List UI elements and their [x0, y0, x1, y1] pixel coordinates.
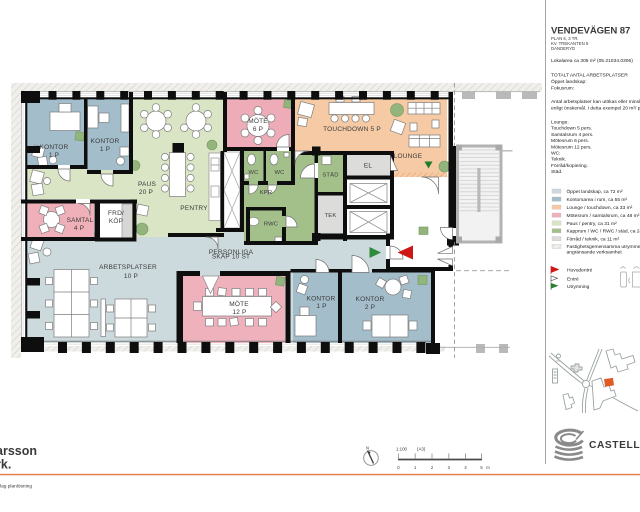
svg-text:Öppet landskap:: Öppet landskap:	[551, 78, 587, 85]
svg-text:Fokusrum:: Fokusrum:	[551, 85, 574, 91]
svg-text:TOTALT ANTAL ARBETSPLATSER: TOTALT ANTAL ARBETSPLATSER	[551, 73, 628, 79]
svg-text:KONTOR: KONTOR	[356, 296, 385, 303]
svg-text:CASTELL: CASTELL	[589, 440, 640, 451]
svg-text:KONTOR: KONTOR	[307, 296, 336, 303]
svg-text:rk.: rk.	[0, 458, 11, 472]
svg-text:12 P: 12 P	[232, 309, 246, 316]
svg-text:Mötesrum 12 pers.: Mötesrum 12 pers.	[551, 144, 592, 150]
svg-text:Antal arbetsplatser kan utökas: Antal arbetsplatser kan utökas eller min…	[551, 99, 640, 105]
svg-text:10 P: 10 P	[124, 273, 138, 280]
svg-text:KONTOR: KONTOR	[91, 138, 120, 145]
svg-text:EL: EL	[364, 163, 373, 170]
svg-text:Fastighetsgemensamma utrymmen: Fastighetsgemensamma utrymmen och	[567, 244, 640, 250]
svg-text:Touchdown 5 pers.: Touchdown 5 pers.	[551, 126, 592, 132]
svg-text:4 P: 4 P	[74, 225, 84, 232]
svg-text:DANDERYD: DANDERYD	[551, 46, 575, 51]
svg-text:KONTOR: KONTOR	[40, 144, 69, 151]
svg-text:Lounge / touchdown, ca 33 m²: Lounge / touchdown, ca 33 m²	[567, 205, 633, 211]
svg-text:m: m	[486, 465, 490, 470]
svg-text:KÖP: KÖP	[109, 217, 123, 225]
svg-text:Entré: Entré	[567, 276, 579, 282]
svg-text:1:100: 1:100	[396, 447, 408, 452]
svg-text:arsson: arsson	[0, 444, 37, 458]
svg-text:1 P: 1 P	[49, 152, 59, 159]
svg-text:lag planlösning: lag planlösning	[0, 484, 32, 490]
svg-text:enligt önskemål. I detta exemp: enligt önskemål. I detta exempel 20 m²/ …	[551, 104, 640, 111]
svg-text:SAMTAL: SAMTAL	[67, 217, 94, 224]
svg-text:Förråd/kopiering.: Förråd/kopiering.	[551, 162, 588, 169]
svg-text:Kapprum / WC / RWC / städ, ca: Kapprum / WC / RWC / städ, ca 24 m²	[567, 229, 640, 235]
svg-text:Förråd / teknik, ca 11 m²: Förråd / teknik, ca 11 m²	[567, 235, 620, 242]
svg-text:Mötesrum / samtalsrum, ca 48 m: Mötesrum / samtalsrum, ca 48 m²	[567, 213, 640, 219]
svg-text:WC: WC	[248, 170, 258, 176]
svg-text:Samtalsrum 4 pers.: Samtalsrum 4 pers.	[551, 132, 593, 138]
svg-text:MÖTE: MÖTE	[229, 300, 249, 308]
svg-text:20 P: 20 P	[139, 189, 153, 196]
svg-text:Paus / pentry, ca 31 m²: Paus / pentry, ca 31 m²	[567, 221, 618, 227]
svg-text:FRD/: FRD/	[108, 210, 124, 217]
svg-text:TOUCHDOWN 5 P: TOUCHDOWN 5 P	[323, 126, 381, 133]
svg-text:1 P: 1 P	[100, 146, 110, 153]
svg-text:KPR: KPR	[260, 190, 273, 196]
svg-text:N: N	[366, 446, 369, 451]
svg-text:Städ.: Städ.	[551, 169, 562, 175]
svg-text:Mötesrum 6 pers.: Mötesrum 6 pers.	[551, 138, 589, 144]
svg-text:Kontorsarea i rum, ca 55 m²: Kontorsarea i rum, ca 55 m²	[567, 197, 628, 203]
svg-text:RWC: RWC	[264, 222, 278, 228]
svg-text:WC: WC	[274, 170, 284, 176]
svg-text:Öppet landskap, ca 72 m²: Öppet landskap, ca 72 m²	[567, 188, 623, 195]
svg-text:Huvudentré: Huvudentré	[567, 268, 593, 274]
svg-text:SKÅP 10 ST: SKÅP 10 ST	[212, 252, 250, 261]
svg-text:Lounge:: Lounge:	[551, 120, 569, 126]
svg-text:ARBETSPLATSER: ARBETSPLATSER	[99, 264, 157, 271]
svg-text:Teknik.: Teknik.	[551, 157, 566, 163]
svg-text:2 P: 2 P	[365, 304, 375, 311]
svg-text:WC:: WC:	[551, 151, 561, 157]
svg-text:MÖTE: MÖTE	[248, 117, 268, 125]
svg-text:PENTRY: PENTRY	[180, 205, 208, 212]
svg-text:STÄD: STÄD	[322, 172, 338, 179]
svg-text:6 P: 6 P	[253, 126, 263, 133]
svg-text:(A3): (A3)	[417, 447, 426, 452]
svg-text:angränsande verksamhet: angränsande verksamhet	[567, 249, 623, 255]
svg-text:Utrymning: Utrymning	[567, 284, 590, 290]
svg-text:PAUS: PAUS	[138, 181, 156, 188]
svg-text:Lokalarea ca 305 m² (05.21034.: Lokalarea ca 305 m² (05.21034.0306)	[551, 58, 633, 64]
svg-text:LOUNGE: LOUNGE	[394, 153, 423, 160]
svg-text:TEK: TEK	[325, 213, 337, 219]
svg-text:1 P: 1 P	[316, 303, 326, 310]
